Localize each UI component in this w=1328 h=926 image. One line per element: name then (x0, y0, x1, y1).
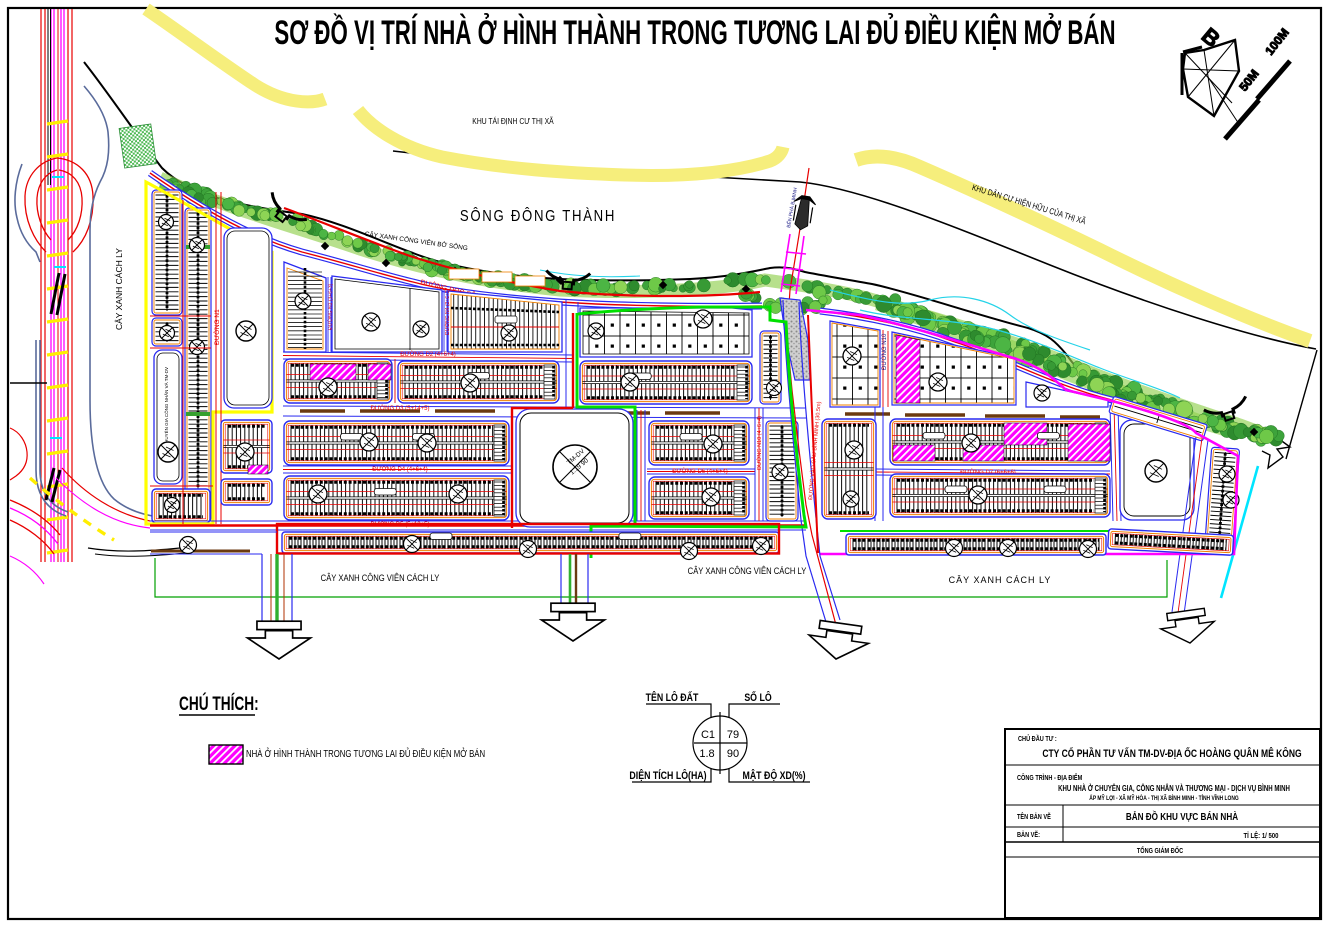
svg-text:79: 79 (727, 729, 739, 741)
svg-text:KHU TÁI ĐỊNH CƯ THỊ XÃ: KHU TÁI ĐỊNH CƯ THỊ XÃ (472, 116, 554, 126)
svg-text:NHÀ Ở HÌNH THÀNH TRONG TƯƠNG L: NHÀ Ở HÌNH THÀNH TRONG TƯƠNG LAI ĐỦ ĐIỀU… (246, 747, 485, 759)
svg-text:CÂY XANH CÁCH LY: CÂY XANH CÁCH LY (114, 248, 124, 330)
svg-text:SƠ ĐỒ VỊ TRÍ NHÀ Ở HÌNH THÀNH: SƠ ĐỒ VỊ TRÍ NHÀ Ở HÌNH THÀNH TRONG TƯƠN… (274, 12, 1115, 52)
svg-text:C1: C1 (701, 729, 715, 741)
svg-text:ẤP MỸ LỢI - XÃ MỸ HÒA - THỊ XÃ: ẤP MỸ LỢI - XÃ MỸ HÒA - THỊ XÃ BÌNH MINH… (1089, 793, 1238, 802)
svg-text:ĐƯỜNG N10: ĐƯỜNG N10 (881, 333, 888, 370)
svg-text:BẢN ĐỒ KHU VỰC BÁN NHÀ: BẢN ĐỒ KHU VỰC BÁN NHÀ (1126, 810, 1238, 822)
svg-text:CÔNG TRÌNH - ĐỊA ĐIỂM: CÔNG TRÌNH - ĐỊA ĐIỂM (1017, 772, 1082, 782)
svg-text:ĐƯỜNG D4 (4+6+4): ĐƯỜNG D4 (4+6+4) (372, 466, 428, 473)
svg-text:1.8: 1.8 (699, 748, 714, 760)
svg-text:ĐƯỜNG N1: ĐƯỜNG N1 (212, 309, 221, 345)
svg-text:MẬT ĐỘ XD(%): MẬT ĐỘ XD(%) (742, 769, 805, 782)
svg-text:ĐƯỜNG D2 (4+6+4): ĐƯỜNG D2 (4+6+4) (400, 351, 456, 358)
svg-text:CHÚ THÍCH:: CHÚ THÍCH: (179, 693, 259, 715)
svg-text:ĐƯỜNG D6 (4+6+4): ĐƯỜNG D6 (4+6+4) (672, 468, 728, 475)
svg-text:ĐƯỜNG N4 (3+6+3): ĐƯỜNG N4 (3+6+3) (444, 288, 451, 335)
svg-text:SÔNG ĐÔNG THÀNH: SÔNG ĐÔNG THÀNH (460, 207, 616, 225)
svg-text:CÂY XANH CÁCH LY: CÂY XANH CÁCH LY (949, 575, 1052, 585)
svg-text:CÂY XANH CÔNG VIÊN CÁCH LY: CÂY XANH CÔNG VIÊN CÁCH LY (321, 572, 440, 583)
svg-text:ĐƯỜNG D3 (5+14+5): ĐƯỜNG D3 (5+14+5) (371, 405, 430, 412)
svg-text:TÊN BẢN VẼ: TÊN BẢN VẼ (1017, 811, 1051, 821)
svg-text:KHU NHÀ Ở CHUYÊN GIA, CÔNG NHÂ: KHU NHÀ Ở CHUYÊN GIA, CÔNG NHÂN VÀ THƯƠN… (1058, 783, 1290, 793)
svg-text:90: 90 (727, 748, 739, 760)
svg-text:DIỆN TÍCH LÔ(HA): DIỆN TÍCH LÔ(HA) (629, 769, 706, 782)
svg-text:TÊN LÔ ĐẤT: TÊN LÔ ĐẤT (646, 691, 699, 704)
svg-text:CÂY XANH CÔNG VIÊN CÁCH LY: CÂY XANH CÔNG VIÊN CÁCH LY (688, 565, 807, 576)
svg-text:TỈ LỆ: 1/ 500: TỈ LỆ: 1/ 500 (1244, 830, 1279, 840)
svg-text:SỐ LÔ: SỐ LÔ (744, 691, 772, 704)
svg-text:CTY CỔ PHẦN TƯ VẤN TM-DV-ĐỊA Ố: CTY CỔ PHẦN TƯ VẤN TM-DV-ĐỊA ỐC HOÀNG QU… (1042, 747, 1301, 760)
svg-text:BẢN VẼ:: BẢN VẼ: (1017, 829, 1040, 839)
svg-text:ĐƯỜNG N10 (4+6+4): ĐƯỜNG N10 (4+6+4) (756, 416, 763, 470)
